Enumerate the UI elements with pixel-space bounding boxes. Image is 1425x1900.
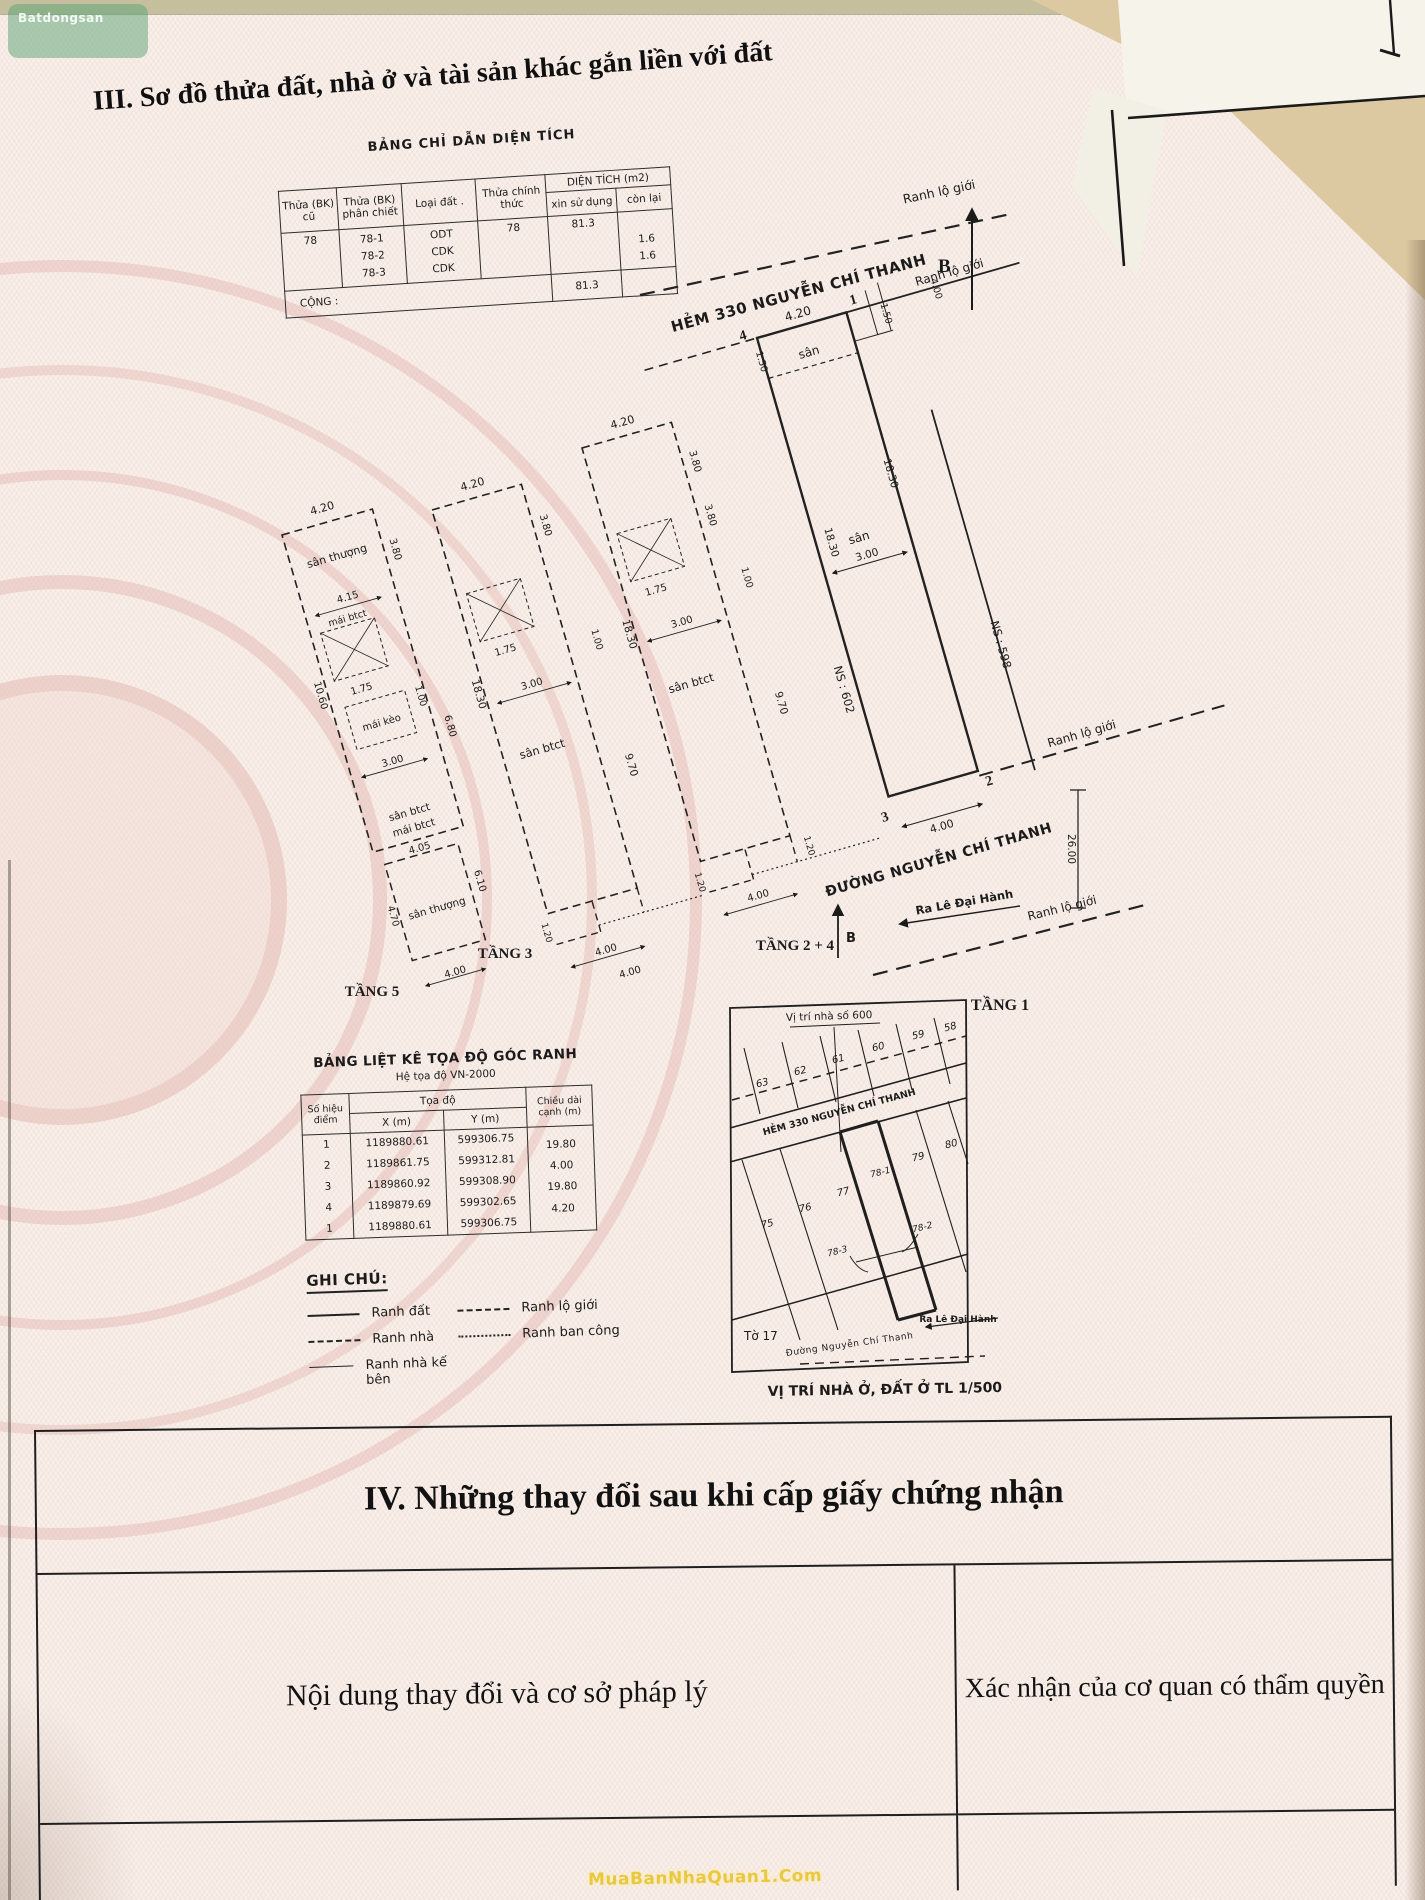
thin-line-swatch (309, 1365, 353, 1368)
col-phan-chiet: Thửa (BK) phân chiết (336, 184, 403, 230)
loai-dat-3: CDK (408, 258, 479, 279)
col-chieu-dai: Chiều dài cạnh (m) (526, 1085, 593, 1127)
dash-line-swatch (308, 1339, 360, 1343)
coordinate-table-block: BẢNG LIỆT KÊ TỌA ĐỘ GÓC RANH Hệ tọa độ V… (290, 1045, 606, 1241)
coord-y: 599312.81 (444, 1148, 528, 1172)
point-id: 1 (302, 1133, 351, 1156)
cong-empty (621, 267, 677, 297)
area-index-table: BẢNG CHỈ DẪN DIỆN TÍCH Thửa (BK) cũ Thửa… (275, 121, 678, 318)
section4-col-left-header: Nội dung thay đổi và cơ sở pháp lý (38, 1565, 959, 1823)
coord-x: 1189880.61 (353, 1214, 447, 1238)
col-chinh-thuc: Thửa chính thức (475, 175, 547, 221)
cell-thua-cu: 78 (281, 230, 342, 292)
legend-row: Ranh đất Ranh lộ giới (307, 1296, 657, 1323)
scanned-land-certificate-page: { "doc": { "section3_title": "III. Sơ đồ… (0, 0, 1425, 1900)
bottom-watermark: MuaBanNhaQuan1.Com (588, 1866, 822, 1890)
legend-ranh-dat: Ranh đất (371, 1304, 430, 1321)
edge-length-4: 4.20 (531, 1201, 596, 1215)
section4-title: IV. Những thay đổi sau khi cấp giấy chứn… (36, 1418, 1391, 1573)
legend-title: GHI CHÚ: (306, 1269, 388, 1294)
dotted-line-swatch (458, 1334, 510, 1338)
coord-y: 599306.75 (447, 1211, 531, 1235)
coord-y: 599308.90 (445, 1169, 529, 1193)
section4-col-right-header: Xác nhận của cơ quan có thẩm quyền (955, 1561, 1394, 1814)
legend-row: Ranh nhà kế bên (309, 1348, 660, 1390)
edge-length-3: 19.80 (530, 1179, 595, 1193)
point-id: 2 (303, 1154, 352, 1177)
section4-changes-table: IV. Những thay đổi sau khi cấp giấy chứn… (34, 1416, 1397, 1900)
right-edge-shadow (1405, 240, 1425, 1900)
legend-ranh-lo-gioi: Ranh lộ giới (521, 1298, 598, 1316)
left-edge-line (8, 860, 11, 1900)
legend-ranh-nha: Ranh nhà (372, 1330, 434, 1347)
col-loai-dat: Loại đất . (401, 179, 478, 226)
cell-phan-chiet: 78-1 78-2 78-3 (339, 226, 407, 288)
cong-value: 81.3 (551, 270, 622, 301)
edge-length-2: 4.00 (529, 1158, 594, 1172)
cell-xin-su-dung: 81.3 (548, 212, 621, 274)
phan-chiet-3: 78-3 (344, 263, 405, 284)
batdongsan-logo-watermark: Batdongsan (8, 4, 148, 58)
col-thua-cu: Thửa (BK) cũ (278, 188, 338, 234)
legend-block: GHI CHÚ: Ranh đất Ranh lộ giới Ranh nhà … (306, 1260, 660, 1401)
edge-lengths: 19.80 4.00 19.80 4.20 (527, 1125, 596, 1232)
cell-loai-dat: ODT CDK CDK (403, 221, 481, 284)
section4-empty-left-cell (40, 1815, 959, 1900)
coord-y: 599302.65 (446, 1190, 530, 1214)
long-dash-swatch (457, 1308, 509, 1312)
legend-ranh-nha-ke-ben: Ranh nhà kế bên (365, 1355, 460, 1388)
edge-length-1: 19.80 (528, 1137, 593, 1151)
legend-ranh-ban-cong: Ranh ban công (522, 1323, 620, 1341)
point-id: 1 (305, 1217, 354, 1240)
con-lai-3: 1.6 (622, 246, 673, 266)
coord-y: 599306.75 (444, 1127, 528, 1151)
col-so-hieu-diem: Số hiệu điểm (301, 1093, 350, 1135)
cell-con-lai: 1.6 1.6 (617, 209, 675, 270)
col-con-lai: còn lại (616, 185, 672, 212)
legend-row: Ranh nhà Ranh ban công (308, 1322, 658, 1349)
point-id: 4 (304, 1196, 353, 1219)
cell-chinh-thuc: 78 (478, 217, 551, 279)
point-id: 3 (304, 1175, 353, 1198)
solid-line-swatch (308, 1313, 360, 1317)
